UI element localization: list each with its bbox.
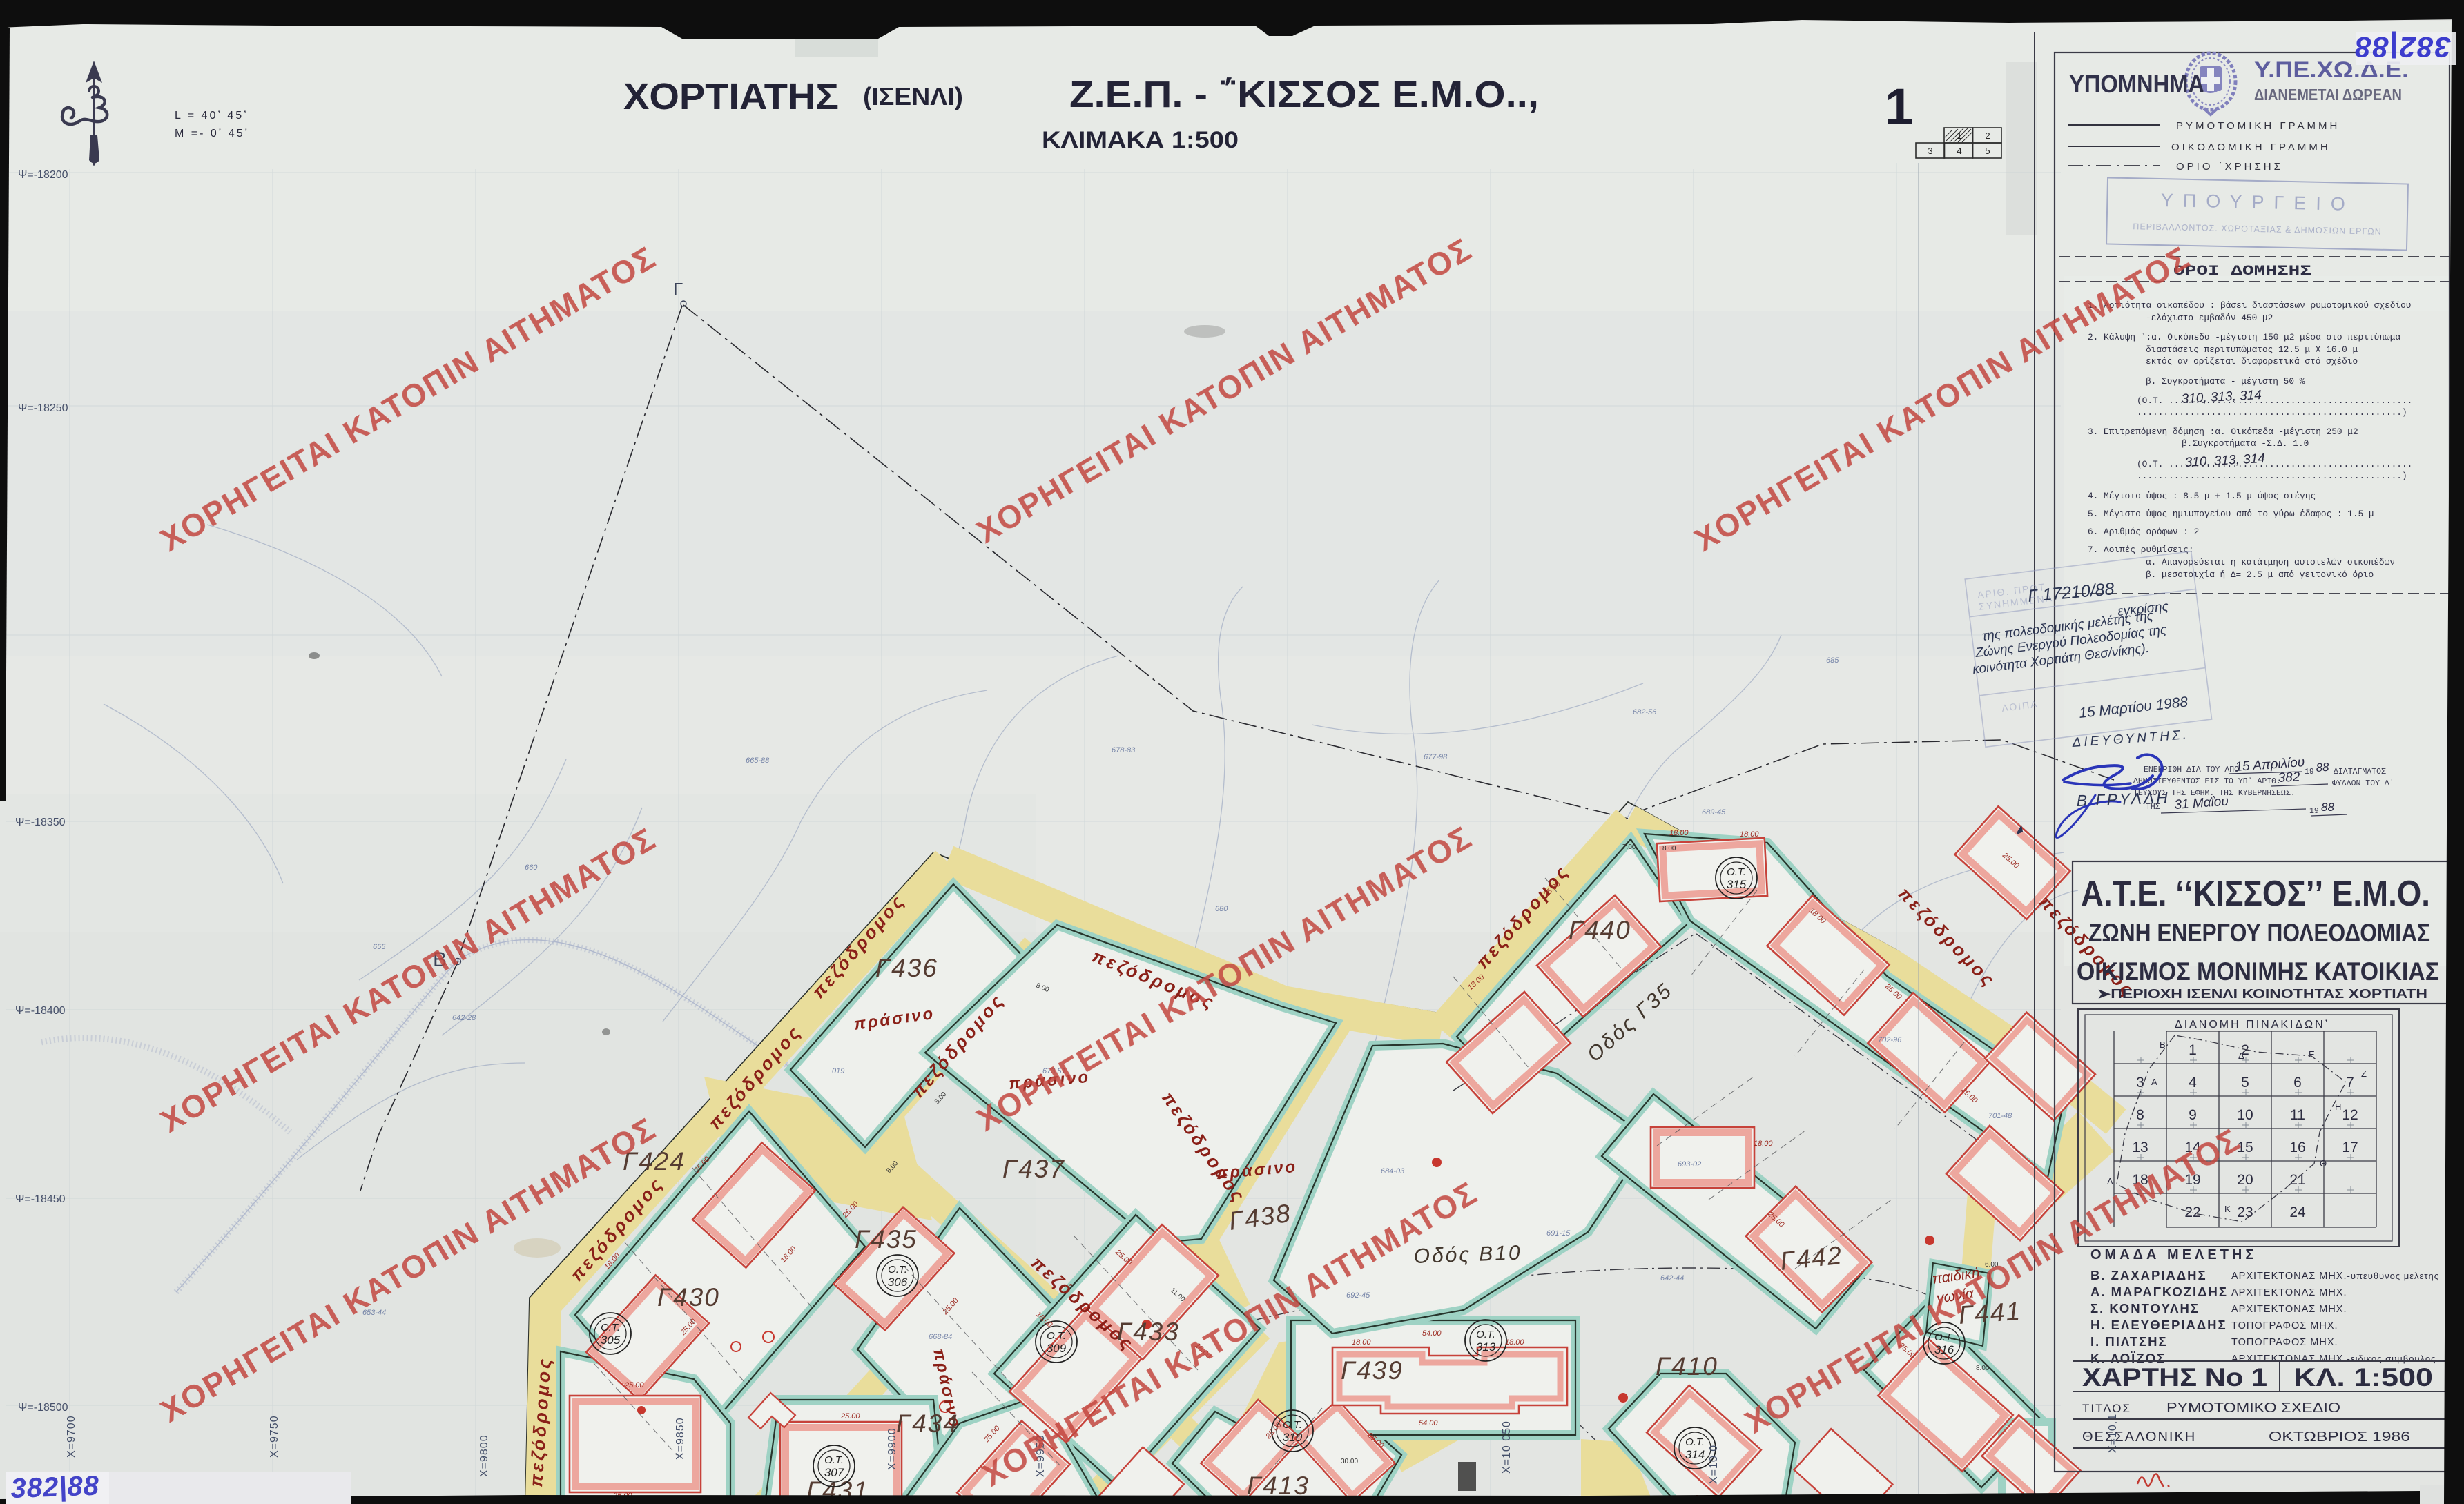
- svg-text:ΥΠΟΥΡΓΕΙΟ: ΥΠΟΥΡΓΕΙΟ: [2161, 190, 2356, 215]
- svg-text:17: 17: [2342, 1140, 2358, 1155]
- svg-text:ΤΟΠΟΓΡΑΦΟΣ ΜΗΧ.: ΤΟΠΟΓΡΑΦΟΣ ΜΗΧ.: [2231, 1320, 2338, 1331]
- svg-text:Γ434: Γ434: [896, 1409, 959, 1438]
- svg-text:Κ: Κ: [2224, 1204, 2231, 1214]
- svg-text:(Ο.Τ. ........................: (Ο.Τ. ..................................…: [2137, 459, 2412, 469]
- svg-text:6: 6: [2293, 1075, 2302, 1091]
- svg-text:ΧΟΡΤΙΑΤΗΣ: ΧΟΡΤΙΑΤΗΣ: [623, 76, 839, 117]
- svg-text:ΑΡΧΙΤΕΚΤΟΝΑΣ ΜΗΧ.: ΑΡΧΙΤΕΚΤΟΝΑΣ ΜΗΧ.: [2231, 1304, 2347, 1315]
- svg-text:Ο.Τ.: Ο.Τ.: [1727, 866, 1746, 878]
- svg-text:25.00: 25.00: [624, 1381, 644, 1389]
- svg-text:11: 11: [2290, 1107, 2305, 1123]
- svg-text:642-44: 642-44: [1660, 1274, 1684, 1282]
- svg-text:314: 314: [1685, 1448, 1705, 1461]
- svg-text:Χ=9850: Χ=9850: [675, 1417, 686, 1460]
- svg-text:Γ436: Γ436: [875, 954, 938, 982]
- svg-text:682-56: 682-56: [1633, 708, 1657, 716]
- svg-text:2. Κάλυψη ʿ:α. Οικόπεδα -μέγισ: 2. Κάλυψη ʿ:α. Οικόπεδα -μέγιστη 150 μ2 …: [2088, 332, 2400, 342]
- svg-text:ΟΙΚΟΔΟΜΙΚΗ ΓΡΑΜΜΗ: ΟΙΚΟΔΟΜΙΚΗ ΓΡΑΜΜΗ: [2171, 141, 2331, 153]
- svg-text:Σ. ΚΟΝΤΟΥΛΗΣ: Σ. ΚΟΝΤΟΥΛΗΣ: [2090, 1301, 2200, 1316]
- svg-text:ΟΡΙΟ ΄ΧΡΗΣΗΣ: ΟΡΙΟ ΄ΧΡΗΣΗΣ: [2176, 161, 2283, 173]
- svg-text:3. Επιτρεπόμενη δόμηση :α. Οικ: 3. Επιτρεπόμενη δόμηση :α. Οικόπεδα -μέγ…: [2088, 427, 2358, 437]
- svg-text:α. Απαγορεύεται η κατάτμηση αυ: α. Απαγορεύεται η κατάτμηση αυτοτελών οι…: [2146, 557, 2395, 567]
- svg-text:316: 316: [1934, 1343, 1954, 1356]
- svg-text:L = 40ʼ 45ʼ: L = 40ʼ 45ʼ: [175, 110, 249, 121]
- svg-text:διαστάσεις περιτυπώματος 12: διαστάσεις περιτυπώματος 12.5 μ Χ 16.0 μ: [2146, 344, 2358, 355]
- svg-text:4: 4: [2189, 1075, 2197, 1091]
- svg-text:Ψ=-18250: Ψ=-18250: [18, 402, 68, 414]
- svg-text:1: 1: [1957, 130, 1961, 141]
- svg-text:307: 307: [824, 1466, 844, 1479]
- svg-text:660: 660: [525, 863, 538, 872]
- svg-text:Γ410: Γ410: [1656, 1352, 1718, 1380]
- svg-text:Δ: Δ: [2238, 1051, 2244, 1061]
- svg-text:Ο.Τ.: Ο.Τ.: [888, 1264, 907, 1276]
- svg-text:Ο.Τ.: Ο.Τ.: [1476, 1329, 1495, 1340]
- svg-text:-ελάχιστο εμβαδόν: -ελάχιστο εμβαδόν 450 μ2: [2146, 313, 2273, 323]
- svg-text:β.Συγκροτήματα -Σ.Δ.: β.Συγκροτήματα -Σ.Δ. 1.0: [2182, 438, 2309, 449]
- svg-text:7: 7: [2346, 1075, 2354, 1091]
- svg-text:680: 680: [1215, 905, 1228, 913]
- svg-text:Γ430: Γ430: [657, 1283, 720, 1311]
- svg-text:88: 88: [2321, 801, 2334, 814]
- svg-text:ΔΙΑΝΕΜΕΤΑΙ ΔΩΡΕΑΝ: ΔΙΑΝΕΜΕΤΑΙ ΔΩΡΕΑΝ: [2254, 86, 2402, 104]
- svg-text:ΧΑΡΤΗΣ Νο 1: ΧΑΡΤΗΣ Νο 1: [2082, 1363, 2267, 1391]
- svg-text:306: 306: [888, 1276, 908, 1289]
- svg-text:4: 4: [1957, 146, 1961, 156]
- svg-text:2: 2: [1985, 130, 1990, 141]
- svg-text:5: 5: [2241, 1075, 2249, 1091]
- svg-text:ΤΙΤΛΟΣ: ΤΙΤΛΟΣ: [2082, 1402, 2131, 1415]
- svg-text:309: 309: [1047, 1342, 1067, 1355]
- svg-text:Ο.Τ.: Ο.Τ.: [1047, 1330, 1066, 1342]
- svg-text:Α: Α: [2151, 1077, 2157, 1087]
- svg-text:Ψ=-18350: Ψ=-18350: [15, 817, 66, 828]
- svg-text:685: 685: [1826, 656, 1839, 665]
- svg-text:21: 21: [2289, 1172, 2305, 1188]
- svg-text:677-98: 677-98: [1424, 753, 1448, 761]
- svg-text:Γ435: Γ435: [855, 1225, 918, 1253]
- svg-text:Ο.Τ.: Ο.Τ.: [1283, 1419, 1302, 1431]
- svg-text:18.00: 18.00: [1505, 1338, 1524, 1347]
- svg-text:Ο.Τ.: Ο.Τ.: [1685, 1436, 1705, 1448]
- svg-text:382|88: 382|88: [10, 1471, 100, 1504]
- svg-text:ΟΜΑΔΑ ΜΕΛΕΤΗΣ: ΟΜΑΔΑ ΜΕΛΕΤΗΣ: [2090, 1247, 2257, 1262]
- svg-text:18.00: 18.00: [1754, 1140, 1773, 1148]
- svg-text:(ΙΣΕΝΛΙ): (ΙΣΕΝΛΙ): [863, 82, 963, 110]
- svg-text:Ψ=-18200: Ψ=-18200: [18, 169, 68, 181]
- svg-text:Χ=9750: Χ=9750: [269, 1415, 280, 1458]
- svg-text:(Ο.Τ. ........................: (Ο.Τ. ..................................…: [2137, 395, 2412, 406]
- svg-text:Ζ.Ε.Π. - ΅ΚΙΣΣΟΣ Ε.Μ.Ο..,: Ζ.Ε.Π. - ΅ΚΙΣΣΟΣ Ε.Μ.Ο..,: [1069, 74, 1539, 115]
- svg-text:19: 19: [2305, 768, 2314, 777]
- svg-text:382|88: 382|88: [2354, 31, 2451, 64]
- svg-text:Χ=9900: Χ=9900: [886, 1427, 898, 1470]
- svg-text:..............................: ........................................…: [2137, 471, 2407, 481]
- svg-text:18.00: 18.00: [1740, 830, 1759, 839]
- svg-text:691-15: 691-15: [1546, 1229, 1571, 1238]
- svg-text:7.00: 7.00: [1622, 843, 1636, 851]
- svg-text:1: 1: [1885, 78, 1913, 135]
- svg-text:Β ΓΡΥΛΛΗ: Β ΓΡΥΛΛΗ: [2076, 788, 2170, 810]
- svg-text:ΦΥΛΛΟΝ ΤΟΥ Δʼ: ΦΥΛΛΟΝ ΤΟΥ Δʼ: [2332, 779, 2394, 788]
- svg-text:ΟΡΟΙ ΔΟΜΗΣΗΣ: ΟΡΟΙ ΔΟΜΗΣΗΣ: [2173, 264, 2311, 280]
- svg-text:702-96: 702-96: [1878, 1036, 1902, 1044]
- svg-text:Ψ=-18450: Ψ=-18450: [15, 1193, 66, 1205]
- svg-text:12: 12: [2342, 1107, 2358, 1123]
- svg-text:6. Αριθμός ορόφων : 2: 6. Αριθμός ορόφων : 2: [2088, 527, 2199, 537]
- svg-text:ΚΛ. 1:500: ΚΛ. 1:500: [2293, 1363, 2433, 1391]
- svg-text:3: 3: [2136, 1075, 2144, 1091]
- svg-text:8: 8: [2136, 1107, 2144, 1123]
- svg-text:5: 5: [1985, 146, 1990, 156]
- svg-text:668-84: 668-84: [929, 1333, 952, 1341]
- svg-text:16: 16: [2289, 1140, 2305, 1155]
- svg-text:Χ=9800: Χ=9800: [478, 1434, 490, 1477]
- svg-text:Θ: Θ: [2320, 1158, 2327, 1169]
- svg-text:Ι. ΠΙΛΤΣΗΣ: Ι. ΠΙΛΤΣΗΣ: [2090, 1334, 2168, 1349]
- svg-text:β. Συγκροτήματα -: β. Συγκροτήματα - μέγιστη 50 %: [2146, 376, 2305, 387]
- svg-text:18.00: 18.00: [1669, 829, 1689, 837]
- svg-text:Ζ: Ζ: [2361, 1068, 2367, 1079]
- svg-text:ΚΛΙΜΑΚΑ 1:500: ΚΛΙΜΑΚΑ 1:500: [1042, 127, 1239, 153]
- svg-text:ΑΡΧΙΤΕΚΤΟΝΑΣ ΜΗΧ.-υπευθυνος μ: ΑΡΧΙΤΕΚΤΟΝΑΣ ΜΗΧ.-υπευθυνος μελετης: [2231, 1271, 2439, 1282]
- svg-text:Ο.Τ.: Ο.Τ.: [601, 1322, 620, 1334]
- svg-text:Α.Τ.Ε. ʻʻΚΙΣΣΟΣʼʼ Ε.Μ.Ο.: Α.Τ.Ε. ʻʻΚΙΣΣΟΣʼʼ Ε.Μ.Ο.: [2081, 874, 2430, 914]
- svg-text:1: 1: [2189, 1042, 2197, 1058]
- svg-text:ΡΥΜΟΤΟΜΙΚΗ ΓΡΑΜΜΗ: ΡΥΜΟΤΟΜΙΚΗ ΓΡΑΜΜΗ: [2176, 120, 2340, 132]
- svg-text:Η. ΕΛΕΥΘΕΡΙΑΔΗΣ: Η. ΕΛΕΥΘΕΡΙΑΔΗΣ: [2090, 1318, 2227, 1332]
- svg-text:ΤΟΠΟΓΡΑΦΟΣ ΜΗΧ.: ΤΟΠΟΓΡΑΦΟΣ ΜΗΧ.: [2231, 1337, 2338, 1348]
- svg-text:Γ433: Γ433: [1117, 1318, 1180, 1346]
- svg-text:665-88: 665-88: [746, 756, 770, 765]
- svg-text:ΥΠΟΜΝΗΜΑ: ΥΠΟΜΝΗΜΑ: [2069, 70, 2204, 98]
- svg-text:655: 655: [373, 943, 386, 951]
- svg-text:19: 19: [2309, 807, 2319, 816]
- svg-text:➤ΠΕΡΙΟΧΗ ΙΣΕΝΛΙ ΚΟΙΝΟΤΗΤΑΣ: ➤ΠΕΡΙΟΧΗ ΙΣΕΝΛΙ ΚΟΙΝΟΤΗΤΑΣ ΧΟΡΤΙΑΤΗ: [2097, 986, 2427, 1001]
- svg-text:Η: Η: [2335, 1102, 2341, 1112]
- svg-text:8.00: 8.00: [1976, 1365, 1990, 1372]
- svg-text:Χ=10 050: Χ=10 050: [1501, 1420, 1513, 1474]
- svg-text:88: 88: [2316, 761, 2330, 774]
- svg-text:22: 22: [2184, 1204, 2200, 1220]
- svg-text:ΔΙΑΝΟΜΗ ΠΙΝΑΚΙΔΩΝʼ: ΔΙΑΝΟΜΗ ΠΙΝΑΚΙΔΩΝʼ: [2175, 1019, 2329, 1031]
- svg-text:310: 310: [1283, 1431, 1303, 1444]
- svg-text:54.00: 54.00: [1419, 1419, 1438, 1427]
- svg-text:Ψ=-18500: Ψ=-18500: [18, 1402, 68, 1414]
- svg-text:Γ440: Γ440: [1569, 916, 1631, 944]
- svg-text:642-28: 642-28: [452, 1014, 476, 1022]
- svg-text:ΕΝΕΚΡΙΘΗ ΔΙΑ ΤΟΥ ΑΠΟ: ΕΝΕΚΡΙΘΗ ΔΙΑ ΤΟΥ ΑΠΟ: [2144, 765, 2239, 774]
- svg-text:Β: Β: [2160, 1039, 2166, 1050]
- svg-text:30.00: 30.00: [1341, 1458, 1358, 1465]
- svg-text:20: 20: [2237, 1172, 2253, 1188]
- svg-text:13: 13: [2132, 1140, 2148, 1155]
- svg-text:18.00: 18.00: [1352, 1338, 1371, 1347]
- svg-text:ΡΥΜΟΤΟΜΙΚΟ ΣΧΕΔΙΟ: ΡΥΜΟΤΟΜΙΚΟ ΣΧΕΔΙΟ: [2166, 1400, 2340, 1416]
- svg-text:10: 10: [2237, 1107, 2253, 1123]
- svg-text:701-48: 701-48: [1988, 1112, 2012, 1120]
- svg-text:9: 9: [2189, 1107, 2197, 1123]
- svg-text:684-03: 684-03: [1381, 1167, 1405, 1175]
- svg-text:εκτός αν ορίζεται διαφορετι: εκτός αν ορίζεται διαφορετικά στό σχέδιο: [2146, 356, 2358, 367]
- svg-text:Χ=10 0: Χ=10 0: [1708, 1445, 1720, 1484]
- svg-text:Οδός Β10: Οδός Β10: [1413, 1242, 1522, 1268]
- svg-text:24: 24: [2289, 1204, 2306, 1220]
- svg-text:ΑΡΧΙΤΕΚΤΟΝΑΣ ΜΗΧ.: ΑΡΧΙΤΕΚΤΟΝΑΣ ΜΗΧ.: [2231, 1287, 2347, 1298]
- svg-text:ΟΙΚΙΣΜΟΣ ΜΟΝΙΜΗΣ ΚΑΤΟΙΚΙΑΣ: ΟΙΚΙΣΜΟΣ ΜΟΝΙΜΗΣ ΚΑΤΟΙΚΙΑΣ: [2077, 957, 2439, 986]
- svg-text:Γ439: Γ439: [1341, 1356, 1404, 1385]
- svg-text:4. Μέγιστο ύψος : 8.5: 4. Μέγιστο ύψος : 8.5 μ + 1.5 μ ύψος στέ…: [2088, 491, 2316, 501]
- svg-text:ΟΚΤΩΒΡΙΟΣ 1986: ΟΚΤΩΒΡΙΟΣ 1986: [2269, 1429, 2410, 1445]
- svg-text:315: 315: [1727, 878, 1747, 891]
- svg-text:ΘΕΣΣΑΛΟΝΙΚΗ: ΘΕΣΣΑΛΟΝΙΚΗ: [2082, 1429, 2196, 1445]
- svg-text:Γ: Γ: [673, 279, 683, 300]
- svg-text:Β. ΖΑΧΑΡΙΑΔΗΣ: Β. ΖΑΧΑΡΙΑΔΗΣ: [2090, 1268, 2207, 1282]
- svg-text:3: 3: [1928, 146, 1932, 156]
- svg-text:ΖΩΝΗ ΕΝΕΡΓΟΥ ΠΟΛΕΟΔΟΜΙΑΣ: ΖΩΝΗ ΕΝΕΡΓΟΥ ΠΟΛΕΟΔΟΜΙΑΣ: [2088, 919, 2430, 947]
- svg-text:678-83: 678-83: [1112, 746, 1136, 754]
- svg-text:689-45: 689-45: [1702, 808, 1726, 817]
- svg-text:Ο.Τ.: Ο.Τ.: [824, 1454, 844, 1466]
- svg-text:Α. ΜΑΡΑΓΚΟΖΙΔΗΣ: Α. ΜΑΡΑΓΚΟΖΙΔΗΣ: [2090, 1285, 2228, 1299]
- svg-text:305: 305: [601, 1334, 621, 1347]
- svg-text:23: 23: [2237, 1204, 2253, 1220]
- svg-text:692-45: 692-45: [1346, 1291, 1370, 1300]
- svg-text:Ψ=-18400: Ψ=-18400: [15, 1005, 66, 1017]
- svg-text:Γ437: Γ437: [1002, 1155, 1065, 1183]
- svg-text:..............................: ........................................…: [2137, 407, 2407, 418]
- svg-text:Δ: Δ: [2107, 1176, 2113, 1186]
- svg-text:8.00: 8.00: [1662, 845, 1676, 852]
- svg-text:Χ=9700: Χ=9700: [66, 1415, 77, 1458]
- svg-text:313: 313: [1476, 1340, 1496, 1354]
- svg-text:019: 019: [832, 1067, 844, 1075]
- svg-text:5. Μέγιστο ύψος ημιυπογείου απ: 5. Μέγιστο ύψος ημιυπογείου από το γύρω …: [2088, 509, 2374, 519]
- svg-text:β. μεσοτοιχία ή Δ= 2.5 μ από: β. μεσοτοιχία ή Δ= 2.5 μ από γειτονικό ό…: [2146, 569, 2374, 580]
- svg-text:25.00: 25.00: [840, 1412, 860, 1420]
- svg-text:54.00: 54.00: [1422, 1329, 1442, 1338]
- svg-text:693-02: 693-02: [1678, 1160, 1701, 1169]
- svg-text:ΔΙΑΤΑΓΜΑΤΟΣ: ΔΙΑΤΑΓΜΑΤΟΣ: [2334, 768, 2386, 777]
- svg-text:M =- 0ʼ 45ʼ: M =- 0ʼ 45ʼ: [175, 128, 249, 139]
